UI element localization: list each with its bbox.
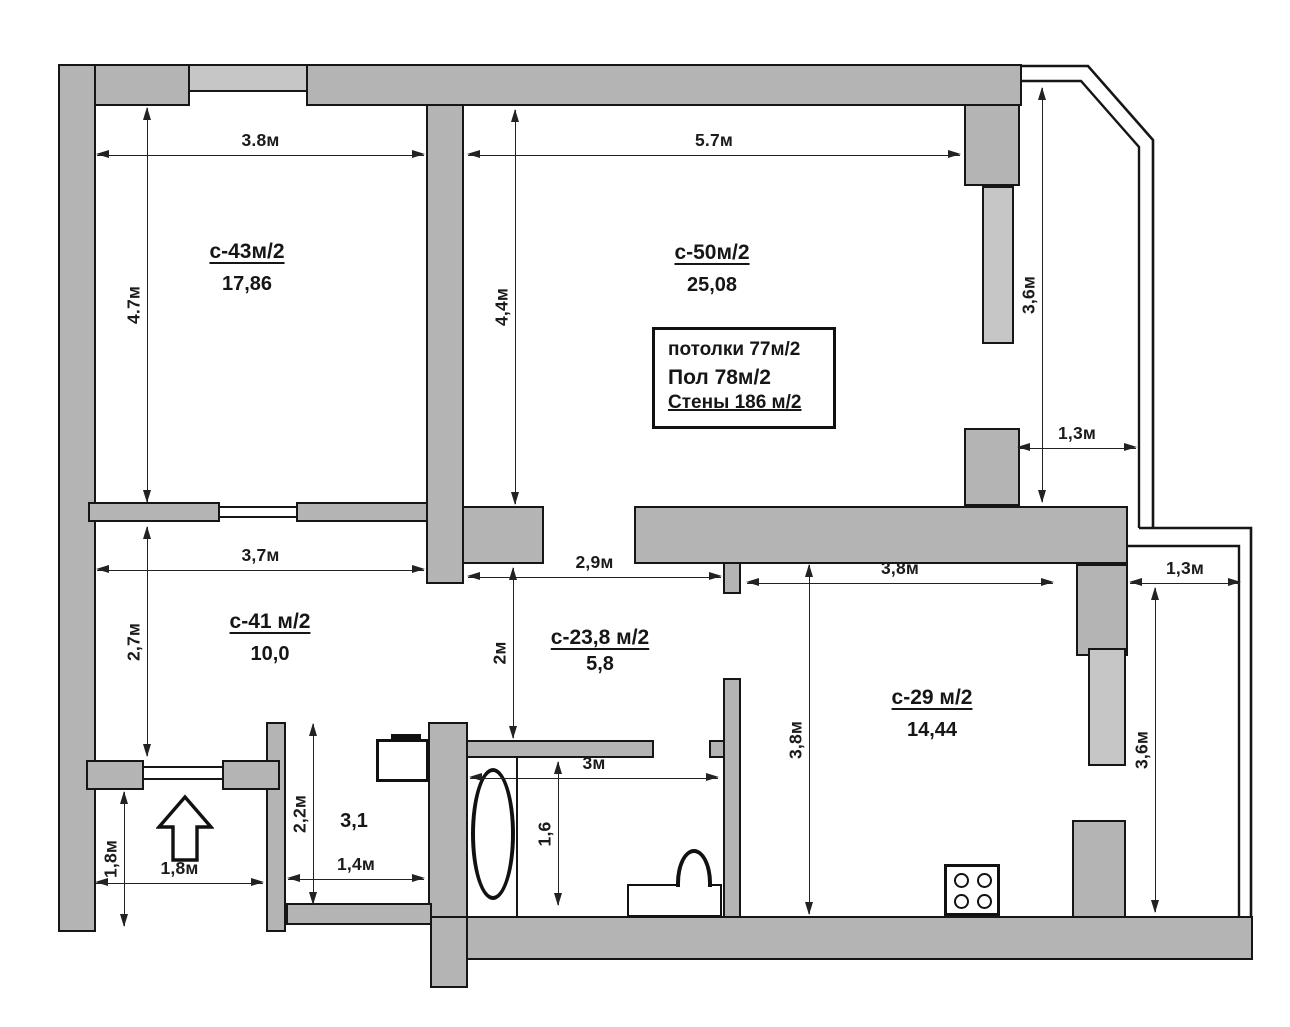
room-43-label: с-43м/2 17,86 xyxy=(209,240,284,296)
dim-hall-width: 2,9м xyxy=(468,577,721,578)
room-29-label: с-29 м/2 14,44 xyxy=(892,686,973,742)
washing-machine xyxy=(376,739,429,782)
wall xyxy=(634,506,1128,564)
dim-room43-height: 4.7м xyxy=(147,108,148,502)
wall xyxy=(723,562,741,594)
wall xyxy=(306,64,1022,106)
wall xyxy=(964,104,1020,186)
entrance-arrow-icon xyxy=(156,794,214,864)
wall xyxy=(1072,820,1126,918)
counter xyxy=(627,884,722,917)
wall xyxy=(86,760,144,790)
burner-icon xyxy=(954,873,969,888)
floor-total: Пол 78м/2 xyxy=(668,366,833,390)
wall xyxy=(964,428,1020,506)
dim-bath-height: 1,6 xyxy=(558,762,559,905)
wall xyxy=(296,502,428,522)
wall xyxy=(266,722,286,932)
burner-icon xyxy=(977,873,992,888)
dim-balcony-width: 1,3м xyxy=(1018,448,1136,449)
wall xyxy=(58,64,96,932)
wall xyxy=(426,104,464,584)
wall xyxy=(464,740,654,758)
walls-total: Стены 186 м/2 xyxy=(668,392,833,414)
ceilings-total: потолки 77м/2 xyxy=(668,339,833,361)
dim-loggia-width: 1,3м xyxy=(1130,583,1240,584)
dim-room29-width: 3,8м xyxy=(747,583,1053,584)
door-opening xyxy=(220,506,298,518)
wall xyxy=(723,678,741,918)
wall xyxy=(430,916,1253,960)
burner-icon xyxy=(977,894,992,909)
window xyxy=(188,64,308,92)
dim-vestibule-height: 1,8м xyxy=(124,792,125,926)
dim-corridor-height: 2,2м xyxy=(313,724,314,904)
floor-plan: потолки 77м/2 Пол 78м/2 Стены 186 м/2 с-… xyxy=(0,0,1290,1027)
washing-machine-handle xyxy=(391,734,421,740)
wall xyxy=(709,740,725,758)
wall xyxy=(286,903,432,925)
wall xyxy=(462,506,544,564)
dim-loggia-height: 3,6м xyxy=(1155,588,1156,912)
bathtub xyxy=(471,768,515,900)
dim-bath-width: 3м xyxy=(470,778,718,779)
entrance-door-opening xyxy=(144,766,222,780)
wall xyxy=(1076,564,1128,656)
dim-room29-height: 3,8м xyxy=(809,565,810,914)
corridor-area-label: 3,1 xyxy=(340,810,368,833)
wall xyxy=(222,760,280,790)
dim-room50-height: 4,4м xyxy=(515,110,516,504)
totals-info-box: потолки 77м/2 Пол 78м/2 Стены 186 м/2 xyxy=(652,327,836,429)
burner-icon xyxy=(954,894,969,909)
dim-room41-height: 2,7м xyxy=(147,527,148,756)
window xyxy=(982,186,1014,344)
room-50-label: с-50м/2 25,08 xyxy=(674,241,749,297)
window xyxy=(1088,648,1126,766)
bath-partition-wall xyxy=(516,757,518,917)
wall xyxy=(430,916,468,988)
room-238-label: с-23,8 м/2 5,8 xyxy=(551,626,649,676)
dim-room50-width: 5.7м xyxy=(468,155,960,156)
room-41-label: с-41 м/2 10,0 xyxy=(230,610,311,666)
stove-icon xyxy=(944,864,1000,916)
wall xyxy=(428,722,468,918)
dim-hall-height: 2м xyxy=(513,568,514,738)
dim-corridor-width: 1,4м xyxy=(288,879,424,880)
wall xyxy=(88,502,220,522)
dim-balcony-height: 3,6м xyxy=(1042,88,1043,502)
dim-vestibule-width: 1,8м xyxy=(96,883,263,884)
